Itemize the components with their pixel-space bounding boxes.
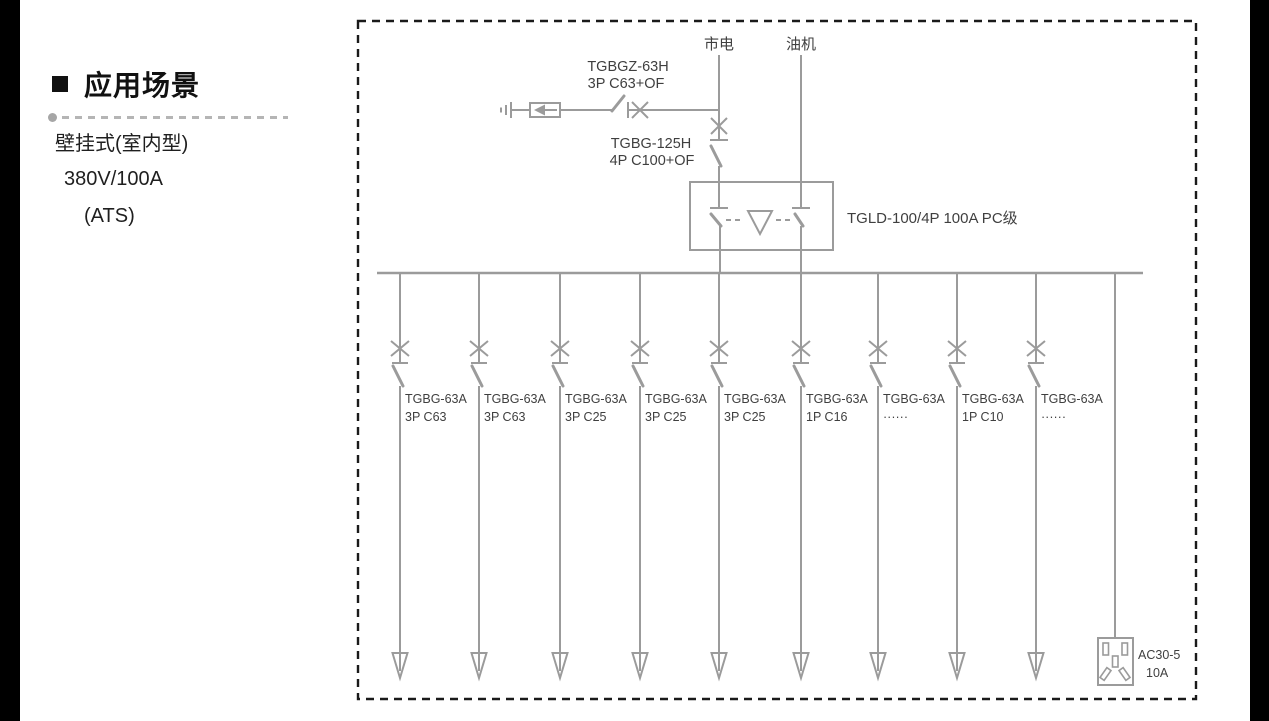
main-breaker-symbol <box>710 118 728 208</box>
branch-model-label: TGBG-63A <box>962 392 1024 406</box>
ats-triangle-icon <box>748 211 772 234</box>
branch-model-label: TGBG-63A <box>484 392 546 406</box>
branch-spec-label: ······ <box>883 410 908 424</box>
spd-branch <box>501 96 719 118</box>
single-line-diagram: 市电 油机 TGBGZ-63H 3P C63+OF TGBG-125H 4P C… <box>0 0 1269 721</box>
feeder-branch: TGBG-63A3P C25 <box>631 273 707 678</box>
branch-breaker-symbol <box>1027 273 1045 363</box>
spd-breaker-spec-label: 3P C63+OF <box>588 76 665 92</box>
feeder-branch: TGBG-63A3P C25 <box>710 273 786 678</box>
socket-branch <box>1098 273 1133 685</box>
feeder-branch: TGBG-63A······ <box>1027 273 1103 678</box>
branch-spec-label: 1P C16 <box>806 410 848 424</box>
branch-breaker-blade <box>472 366 482 386</box>
socket-rating-label: 10A <box>1146 666 1169 680</box>
spd-breaker-symbol <box>628 102 719 118</box>
earth-ground-icon <box>501 102 511 118</box>
feeder-branch: TGBG-63A3P C25 <box>551 273 627 678</box>
branch-spec-label: 1P C10 <box>962 410 1004 424</box>
main-breaker-model-label: TGBG-125H <box>611 136 692 152</box>
branch-breaker-symbol <box>470 273 488 363</box>
branch-model-label: TGBG-63A <box>405 392 467 406</box>
branch-breaker-blade <box>871 366 881 386</box>
branch-spec-label: 3P C25 <box>565 410 607 424</box>
branch-model-label: TGBG-63A <box>565 392 627 406</box>
branch-model-label: TGBG-63A <box>1041 392 1103 406</box>
feeder-branch: TGBG-63A1P C16 <box>792 273 868 678</box>
branch-model-label: TGBG-63A <box>724 392 786 406</box>
ats-switch-symbol <box>690 182 833 273</box>
mains-source-label: 市电 <box>704 36 734 53</box>
branch-breaker-symbol <box>710 273 728 363</box>
diagram-dashed-border <box>358 21 1196 699</box>
ats-label: TGLD-100/4P 100A PC级 <box>847 210 1018 227</box>
spd-breaker-blade <box>612 96 624 111</box>
feeder-branch: TGBG-63A1P C10 <box>948 273 1024 678</box>
branch-model-label: TGBG-63A <box>806 392 868 406</box>
branch-spec-label: ······ <box>1041 410 1066 424</box>
page: 应用场景 壁挂式(室内型) 380V/100A (ATS) 市电 油机 TGBG… <box>0 0 1269 721</box>
branch-spec-label: 3P C63 <box>405 410 447 424</box>
branch-breaker-blade <box>950 366 960 386</box>
branch-breaker-blade <box>1029 366 1039 386</box>
branch-breaker-symbol <box>792 273 810 363</box>
branch-breaker-blade <box>393 366 403 386</box>
feeder-branches: TGBG-63A3P C63TGBG-63A3P C63TGBG-63A3P C… <box>391 273 1103 678</box>
branch-breaker-symbol <box>551 273 569 363</box>
feeder-branch: TGBG-63A3P C63 <box>470 273 546 678</box>
branch-breaker-symbol <box>391 273 409 363</box>
spd-arrow-icon <box>534 105 545 116</box>
branch-breaker-blade <box>633 366 643 386</box>
branch-spec-label: 3P C25 <box>724 410 766 424</box>
branch-breaker-blade <box>553 366 563 386</box>
branch-breaker-blade <box>712 366 722 386</box>
main-breaker-blade <box>711 146 721 166</box>
main-breaker-spec-label: 4P C100+OF <box>610 153 695 169</box>
branch-breaker-symbol <box>869 273 887 363</box>
branch-breaker-blade <box>794 366 804 386</box>
branch-spec-label: 3P C63 <box>484 410 526 424</box>
branch-breaker-symbol <box>948 273 966 363</box>
branch-model-label: TGBG-63A <box>883 392 945 406</box>
branch-spec-label: 3P C25 <box>645 410 687 424</box>
generator-source-label: 油机 <box>786 36 816 53</box>
feeder-branch: TGBG-63A······ <box>869 273 945 678</box>
spd-breaker-model-label: TGBGZ-63H <box>587 59 668 75</box>
socket-model-label: AC30-5 <box>1138 648 1180 662</box>
branch-model-label: TGBG-63A <box>645 392 707 406</box>
branch-breaker-symbol <box>631 273 649 363</box>
feeder-branch: TGBG-63A3P C63 <box>391 273 467 678</box>
